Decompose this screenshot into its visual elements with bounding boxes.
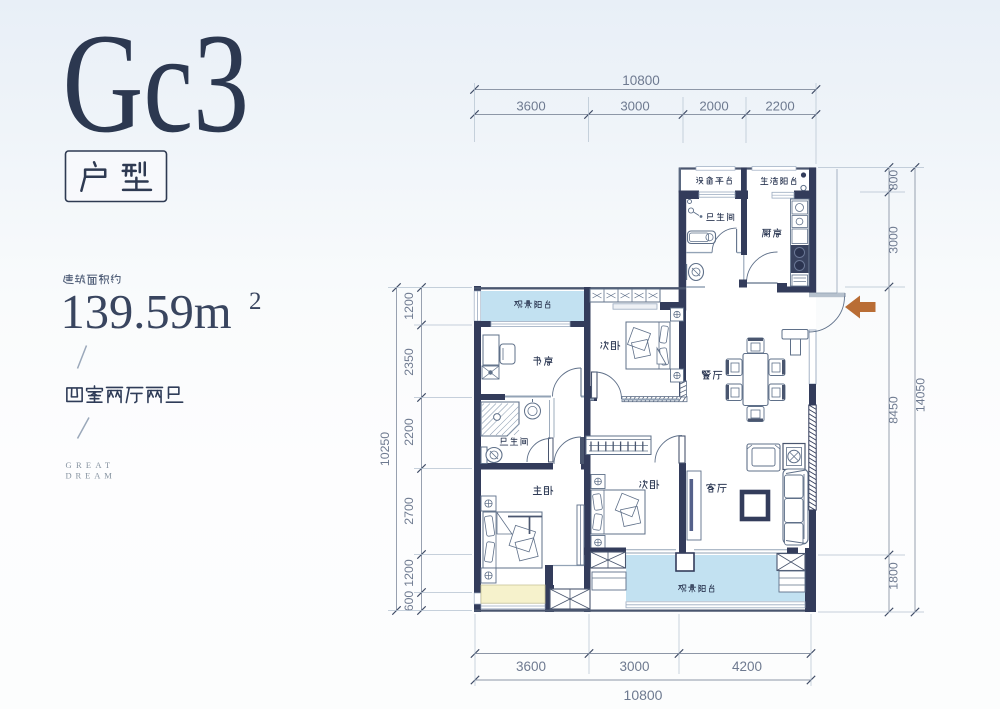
svg-text:3000: 3000	[887, 226, 901, 254]
svg-text:1200: 1200	[402, 292, 416, 320]
svg-text:10800: 10800	[622, 73, 660, 88]
svg-text:2200: 2200	[765, 99, 794, 114]
svg-text:2000: 2000	[699, 99, 728, 114]
svg-text:3600: 3600	[516, 659, 546, 674]
svg-text:600: 600	[402, 591, 416, 612]
svg-text:GREAT: GREAT	[66, 460, 115, 470]
svg-text:800: 800	[887, 170, 901, 191]
svg-text:139.59m: 139.59m	[61, 286, 232, 339]
svg-text:10800: 10800	[624, 687, 663, 703]
svg-text:2: 2	[249, 288, 262, 315]
svg-text:1200: 1200	[402, 559, 416, 587]
svg-text:2350: 2350	[402, 348, 416, 376]
svg-text:3000: 3000	[620, 99, 649, 114]
svg-text:2200: 2200	[402, 418, 416, 446]
svg-text:8450: 8450	[887, 396, 901, 424]
svg-text:Gc3: Gc3	[63, 4, 250, 162]
svg-text:3600: 3600	[516, 99, 545, 114]
svg-text:4200: 4200	[732, 659, 762, 674]
svg-text:10250: 10250	[378, 432, 392, 466]
svg-text:DREAM: DREAM	[66, 471, 116, 481]
svg-text:1800: 1800	[887, 562, 901, 590]
svg-text:14050: 14050	[914, 378, 928, 412]
svg-text:3000: 3000	[619, 659, 649, 674]
svg-text:2700: 2700	[402, 497, 416, 525]
